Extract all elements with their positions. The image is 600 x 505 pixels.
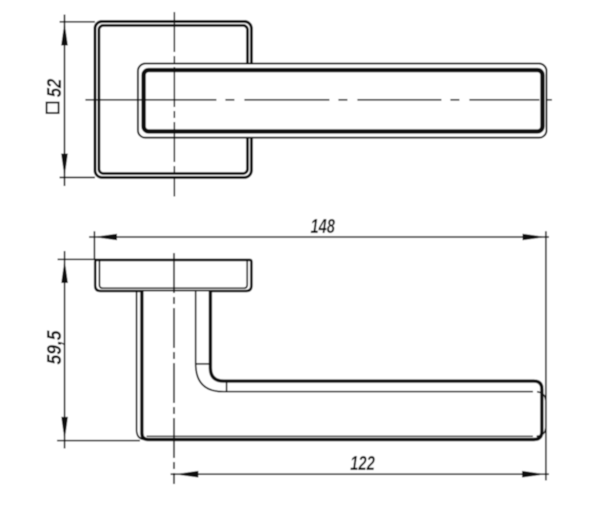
svg-text:59,5: 59,5	[43, 330, 66, 365]
svg-text:148: 148	[310, 215, 335, 238]
svg-text:122: 122	[350, 452, 375, 475]
svg-text:52: 52	[43, 78, 66, 97]
